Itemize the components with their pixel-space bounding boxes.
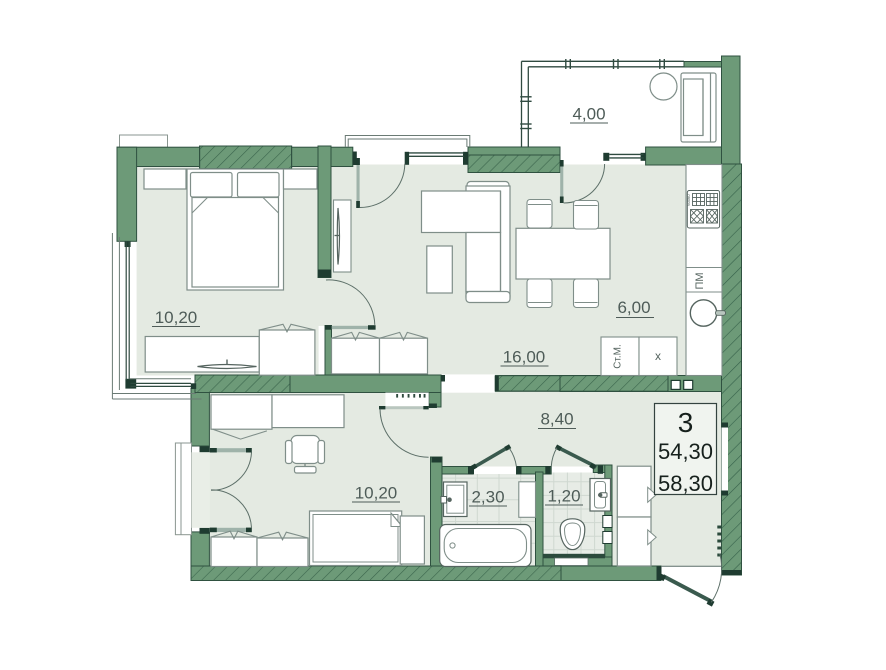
svg-text:1,20: 1,20 bbox=[547, 487, 580, 506]
svg-text:2,30: 2,30 bbox=[471, 488, 504, 507]
svg-text:10,20: 10,20 bbox=[155, 308, 198, 327]
svg-text:60x60: 60x60 bbox=[686, 194, 691, 206]
svg-text:Ст.М.: Ст.М. bbox=[613, 344, 624, 369]
svg-text:16,00: 16,00 bbox=[503, 348, 546, 367]
svg-text:10,20: 10,20 bbox=[355, 484, 398, 503]
svg-text:4,00: 4,00 bbox=[572, 105, 605, 124]
svg-text:8,40: 8,40 bbox=[540, 410, 573, 429]
svg-text:54,30: 54,30 bbox=[658, 439, 713, 464]
svg-text:ПМ: ПМ bbox=[694, 272, 706, 289]
svg-text:х: х bbox=[655, 349, 661, 363]
svg-text:58,30: 58,30 bbox=[658, 471, 713, 496]
svg-text:3: 3 bbox=[678, 407, 694, 438]
svg-text:6,00: 6,00 bbox=[617, 298, 650, 317]
